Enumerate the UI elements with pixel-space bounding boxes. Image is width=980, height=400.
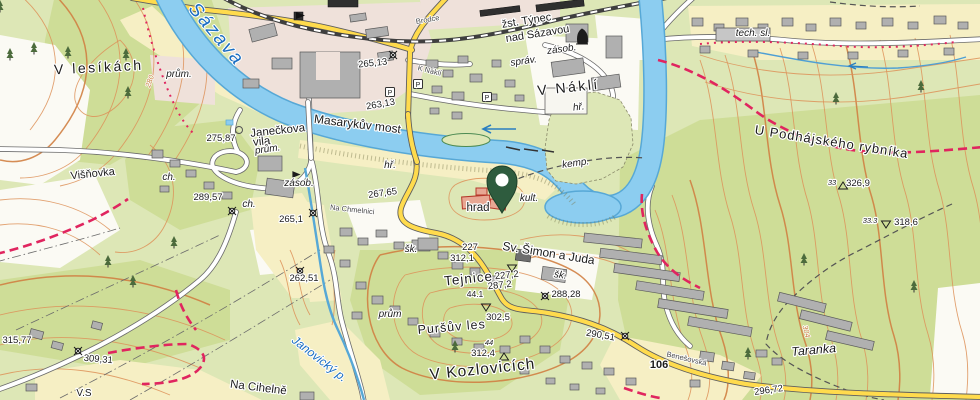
abbrev-label: šk.	[405, 244, 418, 255]
topo-map: P P P Sázava Janovický p. V lesíkách V N…	[0, 0, 980, 400]
elevation-label: 326,9	[846, 178, 870, 189]
abbrev-label: ch.	[242, 199, 255, 210]
elevation-label: 33	[828, 178, 837, 187]
abbrev-label: prům.	[165, 68, 192, 80]
elevation-label: 288,28	[551, 289, 580, 300]
svg-text:P: P	[416, 82, 421, 89]
abbrev-label: prům	[378, 308, 402, 320]
elevation-label: 312,1	[450, 253, 474, 264]
elevation-label: 44	[485, 338, 493, 347]
map-canvas[interactable]: P P P Sázava Janovický p. V lesíkách V N…	[0, 0, 980, 400]
svg-text:P: P	[485, 95, 490, 102]
elevation-label: 315,77	[2, 335, 31, 346]
elevation-label: 275,87	[206, 133, 235, 144]
elevation-label: 227	[462, 242, 478, 253]
abbrev-label: hř.	[384, 160, 396, 171]
abbrev-label: ch.	[162, 172, 175, 183]
elevation-label: 302,5	[486, 312, 510, 323]
elevation-label: 44.1	[467, 289, 484, 299]
elevation-label: 262,51	[289, 273, 318, 284]
elevation-label: 312,4	[471, 348, 495, 359]
river-island	[442, 134, 490, 147]
place-label: V.S	[76, 388, 92, 399]
svg-text:P: P	[388, 90, 393, 97]
road-number-badge: 106	[650, 359, 668, 371]
abbrev-label: šk.	[553, 269, 567, 282]
abbrev-label: zásob.	[283, 178, 313, 189]
abbrev-label: kult.	[520, 193, 538, 204]
elevation-label: 265,1	[279, 214, 303, 225]
abbrev-label: hř.	[572, 101, 585, 113]
abbrev-label: tech. sl.	[736, 28, 770, 39]
castle-label: hrad	[466, 202, 489, 214]
elevation-label: 318,6	[894, 217, 918, 228]
small-pond	[226, 120, 233, 125]
elevation-label: 33.3	[863, 216, 878, 225]
elevation-label: 289,57	[193, 192, 222, 203]
